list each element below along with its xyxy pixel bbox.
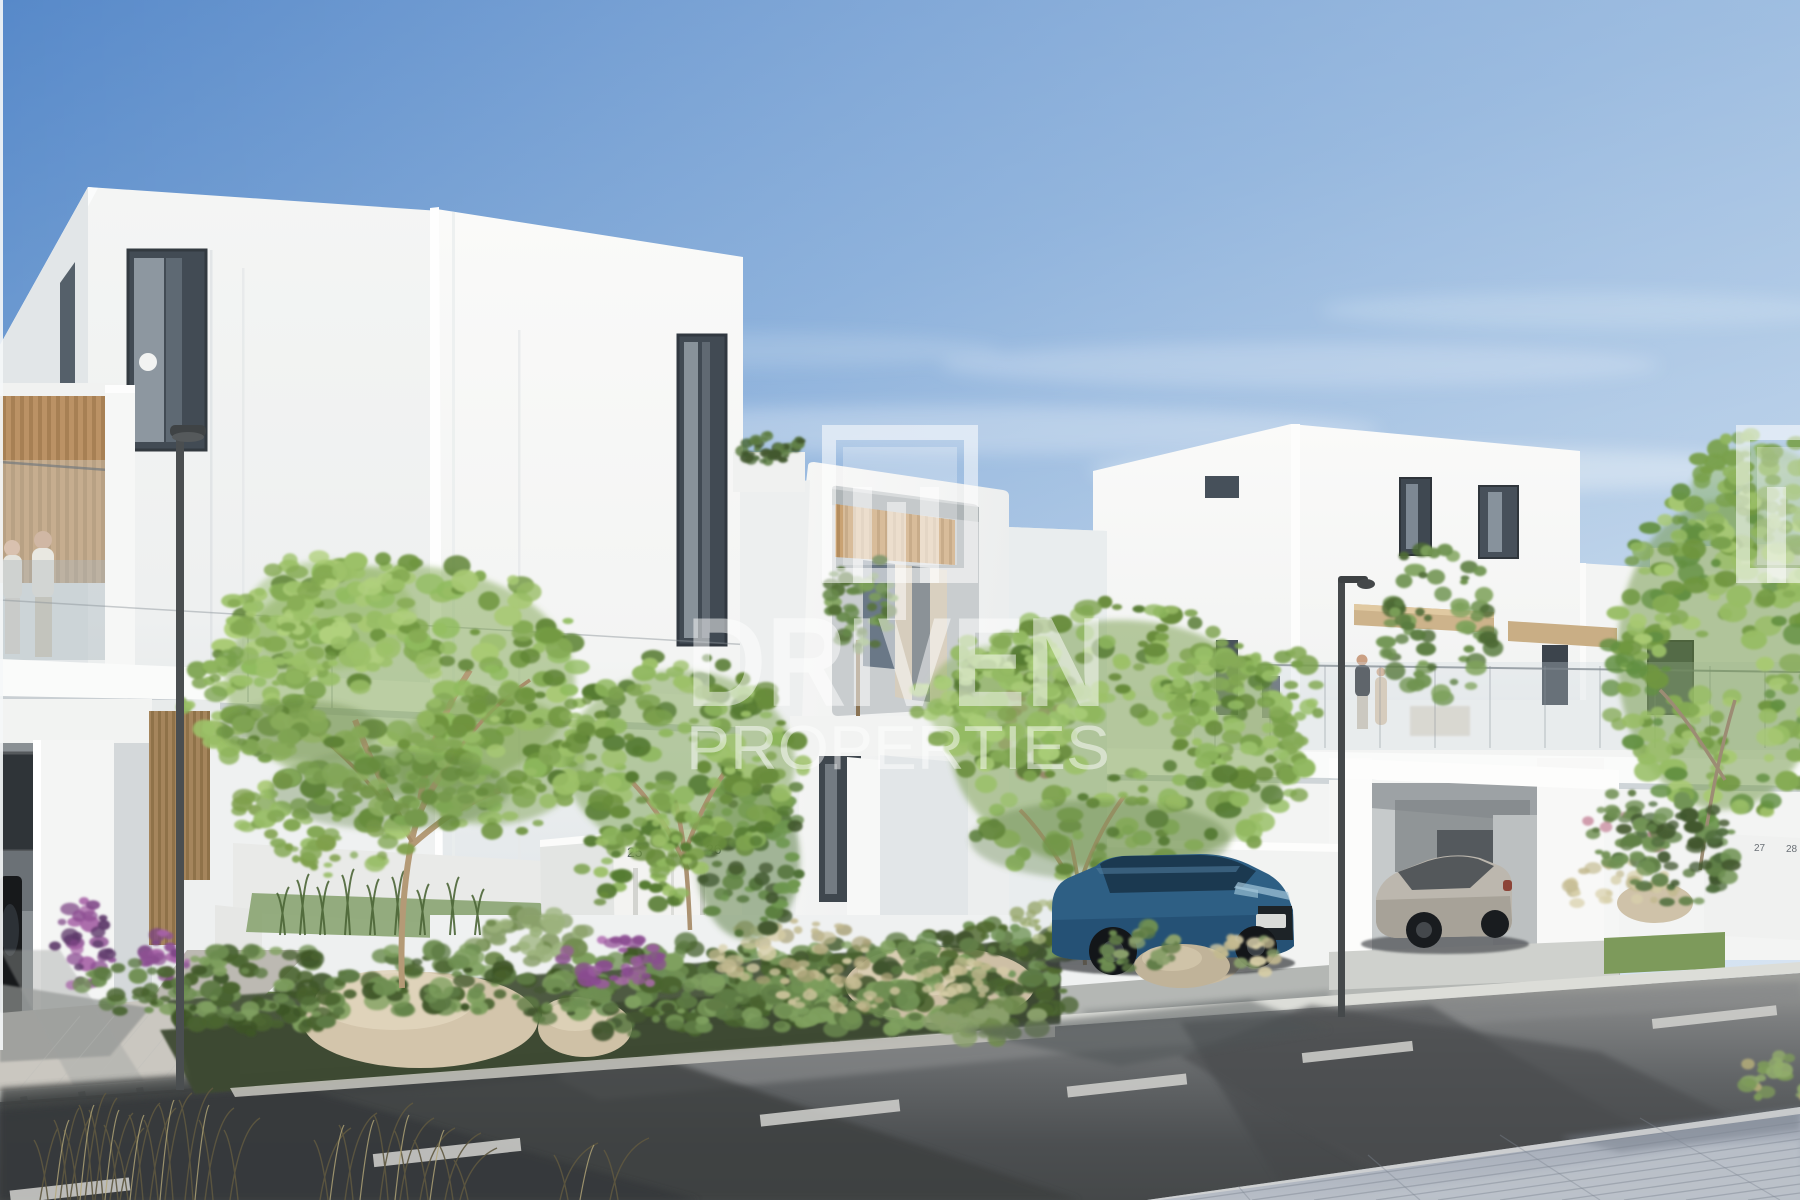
svg-text:DRIVEN: DRIVEN — [686, 591, 1106, 733]
svg-text:27: 27 — [1754, 843, 1766, 854]
svg-text:28: 28 — [1786, 844, 1798, 855]
svg-text:PROPERTIES: PROPERTIES — [686, 714, 1110, 783]
